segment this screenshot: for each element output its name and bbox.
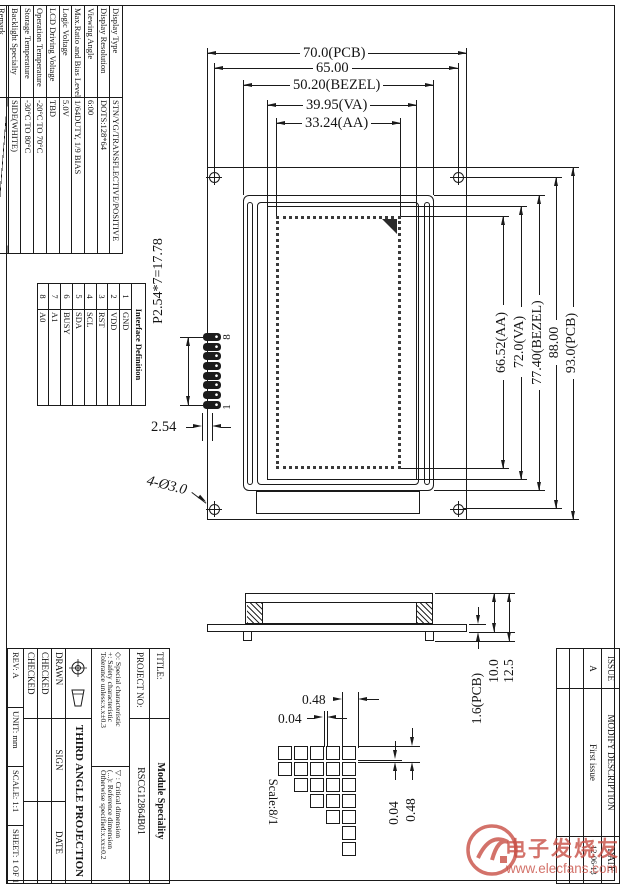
pixel-square — [310, 762, 324, 776]
leader-line — [395, 741, 396, 750]
dim-right-pcb: 93.0(PCB) — [565, 307, 581, 379]
title-block-wrapper: TITLE: Module Speciality PROJECT NO: RSC… — [6, 648, 170, 884]
spec-value: 6:00 — [84, 98, 97, 254]
arrowhead — [425, 83, 434, 87]
interface-title: Interface Definition — [132, 284, 146, 406]
spec-label: Operation Temperature — [34, 6, 47, 98]
arrowhead — [476, 632, 480, 641]
arrowhead — [571, 511, 575, 520]
spec-label: Storage Temperature — [21, 6, 34, 98]
pin-no: 7 — [49, 284, 61, 310]
arrowhead — [519, 471, 523, 480]
sign-label: SIGN — [51, 719, 65, 802]
dim-detail-pitch-v: 0.48 — [404, 792, 419, 828]
note-line: +: Safety characteristic — [107, 652, 115, 722]
watermark-url: www.elecfans.com — [506, 861, 618, 876]
pin-top-label: 8 — [222, 331, 234, 343]
extension-line — [202, 413, 203, 441]
arrowhead — [410, 737, 414, 746]
arrowhead — [507, 632, 511, 641]
arrowhead — [314, 715, 323, 719]
extension-line — [466, 48, 467, 167]
arrowhead — [410, 762, 414, 771]
spec-row: Max.Ratio and Bias Level1/64DUTY, 1/9 BI… — [72, 6, 85, 254]
spec-value: TBD — [46, 98, 59, 254]
third-angle-projection-icon — [65, 649, 91, 719]
spec-value: 1/64DUTY, 1/9 BIAS — [72, 98, 85, 254]
spec-table-wrapper: Display TypeSTN/YG/TRANSFLECTIVE/POSITIV… — [6, 5, 123, 253]
extension-line — [207, 48, 208, 167]
date-label: DATE — [51, 802, 65, 883]
arrowhead — [449, 66, 458, 70]
project-no-value: RSCG12864B01 — [129, 719, 149, 883]
spec-value: SIDE(WHITE) — [8, 98, 21, 254]
note-line: ◇: Special characteristic — [114, 652, 122, 727]
spec-row: Logic Voltage5.0V — [59, 6, 72, 254]
drawn-label: DRAWN — [51, 649, 65, 719]
arrowhead — [492, 623, 496, 632]
pixel-square — [326, 810, 340, 824]
extension-line — [358, 746, 420, 747]
drawing-sheet: Display TypeSTN/YG/TRANSFLECTIVE/POSITIV… — [0, 0, 622, 887]
pixel-square — [342, 826, 356, 840]
side-inner-line — [262, 603, 263, 624]
leader-line — [367, 699, 379, 700]
spec-label: Remark — [0, 6, 8, 98]
pixel-square — [294, 746, 308, 760]
tolerance-notes-left: ◇: Special characteristic +: Safety char… — [91, 649, 129, 767]
sheet-cell: SHEET: 1 OF 1 — [7, 826, 23, 883]
pin-no: 3 — [96, 284, 108, 310]
spec-value: -30°C TO 80°C — [21, 98, 34, 254]
extension-line — [435, 641, 515, 642]
watermark-brand: 电子发烧友 — [505, 833, 620, 863]
spec-label: Display Type — [110, 6, 123, 98]
bezel-slot-right — [424, 202, 430, 485]
issue-blank — [557, 649, 569, 689]
pixel-square — [310, 778, 324, 792]
pin-8 — [203, 333, 221, 341]
dim-pin-gap: 2.54 — [148, 419, 179, 436]
dim-side-total: 12.5 — [502, 652, 518, 690]
arrowhead — [186, 337, 190, 346]
aa-outline — [276, 216, 401, 469]
spec-label: Viewing Angle — [84, 6, 97, 98]
sign-cell — [23, 719, 37, 802]
dim-top-va: 39.95(VA) — [303, 97, 370, 114]
extension-line — [435, 593, 515, 594]
spec-table: Display TypeSTN/YG/TRANSFLECTIVE/POSITIV… — [0, 5, 123, 254]
arrowhead — [333, 697, 342, 701]
pin-name: SCL — [84, 310, 96, 406]
arrowhead — [243, 83, 252, 87]
modify-blank — [557, 689, 569, 837]
extension-line — [458, 63, 459, 170]
modify-header: MODIFY DESCRIPTION — [601, 689, 619, 837]
pixel-square — [310, 794, 324, 808]
leader-line — [221, 427, 231, 428]
side-hatch-left — [247, 603, 262, 623]
side-frame — [245, 593, 433, 624]
title-label: TITLE: — [149, 649, 169, 719]
spec-label: Logic Voltage — [59, 6, 72, 98]
extension-line — [463, 177, 562, 178]
arrowhead — [519, 206, 523, 215]
pin-name: A1 — [49, 310, 61, 406]
pixel-square — [294, 778, 308, 792]
leader-line — [478, 607, 479, 615]
modify-blank — [569, 689, 583, 837]
project-no-label: PROJECT NO: — [129, 649, 149, 719]
extension-line — [324, 711, 325, 747]
arrowhead — [492, 593, 496, 602]
pin-name: SDA — [73, 310, 85, 406]
spec-row: Storage Temperature-30°C TO 80°C — [21, 6, 34, 254]
pixel-square — [310, 746, 324, 760]
hole-crosshair — [458, 501, 459, 517]
pin-7 — [203, 343, 221, 351]
interface-table: Interface Definition 1GND 2VDD 3RST 4SCL… — [37, 283, 146, 406]
pin-name: RST — [96, 310, 108, 406]
pixel-square — [326, 746, 340, 760]
spec-value: -20°C TO 70°C — [34, 98, 47, 254]
dim-right-aa: 66.52(AA) — [495, 305, 511, 380]
dim-detail-gap: 0.04 — [275, 711, 305, 727]
pin-no: 1 — [120, 284, 132, 310]
note-line: ▽ : Critical dimension — [114, 770, 122, 838]
checked-label: CHECKED — [37, 649, 51, 719]
pixel-square — [342, 794, 356, 808]
extension-line — [401, 216, 509, 217]
side-tab-right — [425, 631, 434, 641]
arrowhead — [186, 396, 190, 405]
pin-2 — [203, 391, 221, 399]
extension-line — [463, 508, 562, 509]
arrowhead — [554, 500, 558, 509]
pin-name: BUSY — [61, 310, 73, 406]
hole-crosshair — [214, 169, 215, 185]
extension-line — [180, 405, 203, 406]
pixel-square — [342, 810, 356, 824]
pixel-square — [326, 794, 340, 808]
leader-line — [336, 718, 347, 719]
bezel-slot-left — [247, 202, 253, 485]
extension-line — [416, 100, 417, 206]
projection-symbol-svg — [69, 656, 89, 712]
note-line: Tolerance unless:x.x±0.3 — [99, 652, 107, 728]
arrowhead — [393, 750, 397, 759]
arrowhead — [193, 424, 202, 428]
note-line: (...): Reference dimension — [107, 770, 115, 849]
arrowhead — [571, 167, 575, 176]
hole-crosshair — [214, 501, 215, 517]
tolerance-notes-right: ▽ : Critical dimension (...): Reference … — [91, 767, 129, 883]
pin-no: 4 — [84, 284, 96, 310]
leader-line — [478, 641, 479, 649]
note-line: Otherwise specified:x.xx±0.2 — [99, 770, 107, 860]
pin-name: A0 — [37, 310, 49, 406]
pin-6 — [203, 352, 221, 360]
spec-value: STN/YG/TRANSFLECTIVE/POSITIVE — [110, 98, 123, 254]
side-glass-line — [246, 602, 432, 603]
dim-right-hole-span: 88.00 — [548, 320, 564, 365]
pin-no: 8 — [37, 284, 49, 310]
spec-label: Max.Ratio and Bias Level — [72, 6, 85, 98]
extension-line — [243, 80, 244, 195]
extension-line — [267, 100, 268, 206]
dim-side-pcb: 1.6(PCB) — [470, 652, 486, 745]
arrowhead — [537, 482, 541, 491]
arrowhead — [358, 697, 367, 701]
pin-no: 6 — [61, 284, 73, 310]
spec-row: Display TypeSTN/YG/TRANSFLECTIVE/POSITIV… — [110, 6, 123, 254]
extension-line — [214, 63, 215, 170]
pin-no: 5 — [73, 284, 85, 310]
arrowhead — [501, 216, 505, 225]
modify-value: First issue — [583, 689, 601, 837]
issue-header: ISSUE — [601, 649, 619, 689]
pixel-square — [294, 762, 308, 776]
detail-scale-label: Scale:8/1 — [263, 762, 279, 842]
arrowhead — [214, 66, 223, 70]
issue-blank — [569, 649, 583, 689]
extension-line — [467, 167, 579, 168]
dimension-line — [188, 337, 189, 405]
dim-top-hole-span: 65.00 — [313, 60, 352, 77]
arrowhead — [501, 460, 505, 469]
spec-row: LCD Driving VoltageTBD — [46, 6, 59, 254]
pin-bottom-label: 1 — [222, 401, 234, 413]
extension-line — [434, 490, 545, 491]
pixel-square — [278, 762, 292, 776]
dim-right-bezel: 77.40(BEZEL) — [531, 295, 547, 390]
pixel-square — [326, 778, 340, 792]
spec-label: LCD Driving Voltage — [46, 6, 59, 98]
arrowhead — [537, 195, 541, 204]
pixel-square — [342, 746, 356, 760]
side-hatch-right — [417, 603, 432, 623]
pixel-square — [342, 842, 356, 856]
extension-line — [180, 337, 203, 338]
pin-4 — [203, 372, 221, 380]
spec-row: Remark — [0, 6, 8, 254]
date-cell — [23, 802, 37, 883]
spec-row: Display ResolutionDOTS:128*64 — [97, 6, 110, 254]
date-cell — [37, 802, 51, 883]
pin-no: 2 — [108, 284, 120, 310]
pin-1 — [203, 401, 221, 409]
pin-3 — [203, 381, 221, 389]
arrowhead — [393, 762, 397, 771]
issue-value: A — [583, 649, 601, 689]
extension-line — [358, 760, 402, 761]
pin-name: GND — [120, 310, 132, 406]
sign-cell — [37, 719, 51, 802]
checked-label: CHECKED — [23, 649, 37, 719]
extension-line — [469, 624, 486, 625]
spec-row: Backlight SpecialtySIDE(WHITE) — [8, 6, 21, 254]
leader-line — [412, 728, 413, 737]
extension-line — [434, 195, 545, 196]
interface-table-wrapper: Interface Definition 1GND 2VDD 3RST 4SCL… — [46, 283, 146, 405]
arrowhead — [212, 424, 221, 428]
leader-line — [395, 771, 396, 780]
arrowhead — [554, 177, 558, 186]
extension-line — [342, 692, 343, 748]
arrowhead — [207, 51, 216, 55]
spec-value: DOTS:128*64 — [97, 98, 110, 254]
rev-cell: REV: A — [7, 649, 23, 708]
spec-label: Backlight Specialty — [8, 6, 21, 98]
leader-line — [412, 771, 413, 780]
aa-corner-mark — [382, 219, 397, 234]
spec-value: 5.0V — [59, 98, 72, 254]
hole-crosshair — [458, 169, 459, 185]
extension-line — [433, 80, 434, 195]
side-tab-left — [243, 631, 252, 641]
title-value: Module Speciality — [149, 719, 169, 883]
arrowhead — [327, 715, 336, 719]
spec-row: Viewing Angle6:00 — [84, 6, 97, 254]
pixel-square — [342, 778, 356, 792]
arrowhead — [267, 103, 276, 107]
projection-label: THIRD ANGLE PROJECTION — [65, 719, 91, 883]
arrowhead — [408, 103, 417, 107]
dim-top-aa: 33.24(AA) — [302, 115, 371, 132]
arrowhead — [476, 615, 480, 624]
pixel-square — [342, 762, 356, 776]
spec-row: Operation Temperature-20°C TO 70°C — [34, 6, 47, 254]
arrowhead — [276, 121, 285, 125]
title-block: TITLE: Module Speciality PROJECT NO: RSC… — [6, 648, 170, 884]
arrowhead — [507, 593, 511, 602]
pixel-square — [326, 762, 340, 776]
dim-right-va: 72.0(VA) — [513, 307, 529, 377]
extension-line — [401, 468, 509, 469]
extension-line — [276, 118, 277, 216]
dim-detail-gap-v: 0.04 — [387, 795, 402, 831]
pin-5 — [203, 362, 221, 370]
dim-top-bezel: 50.20(BEZEL) — [290, 77, 383, 94]
unit-cell: UNIT: mm — [7, 708, 23, 767]
scale-cell: SCALE: 1:1 — [7, 767, 23, 826]
extension-line — [417, 479, 527, 480]
spec-label: Display Resolution — [97, 6, 110, 98]
dim-pin-pitch: P2.54*7=17.78 — [152, 235, 169, 327]
pixel-square — [278, 746, 292, 760]
pin-name: VDD — [108, 310, 120, 406]
extension-line — [400, 118, 401, 216]
dim-detail-pitch: 0.48 — [299, 692, 329, 708]
arrowhead — [392, 121, 401, 125]
connector-tab — [256, 491, 420, 514]
arrowhead — [458, 51, 467, 55]
spec-value-remark — [0, 98, 8, 254]
extension-line — [417, 206, 527, 207]
extension-line — [467, 519, 579, 520]
